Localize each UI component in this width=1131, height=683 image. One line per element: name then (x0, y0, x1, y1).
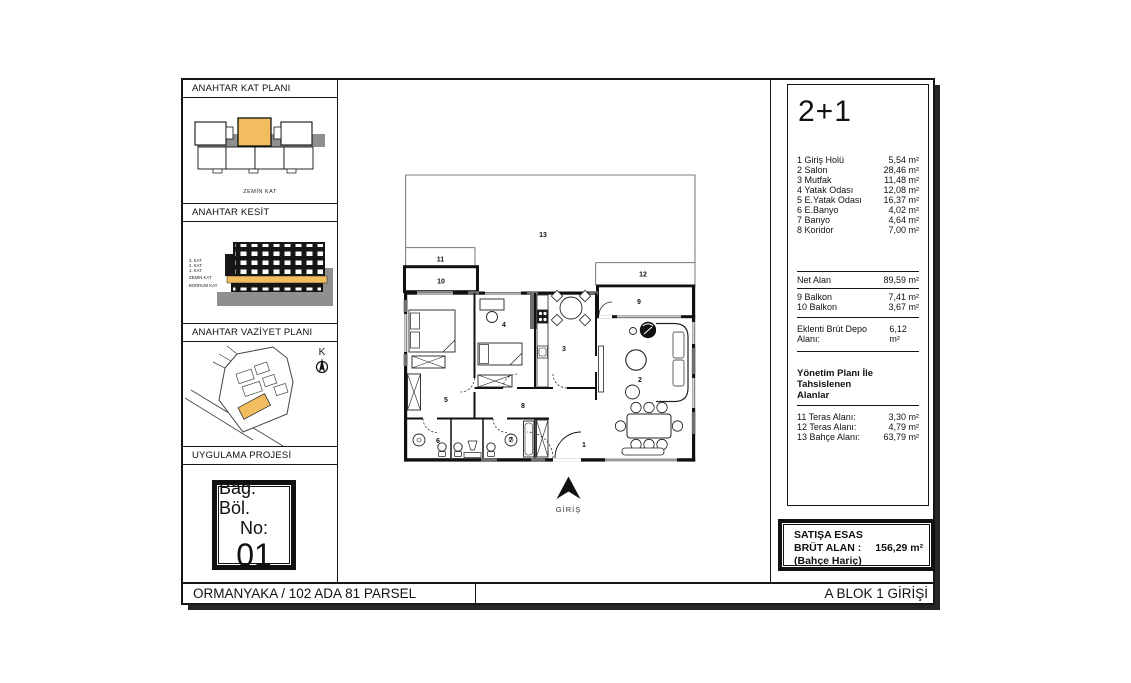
room-area: 11,48 m² (884, 175, 919, 185)
section-title-key-site-plan: ANAHTAR VAZİYET PLANI (183, 323, 337, 342)
room-name: 8 Koridor (797, 225, 834, 235)
key-section-thumbnail: 3. KAT 2. KAT 1. KAT ZEMİN KAT BODRUM KA… (183, 222, 337, 323)
sales-box-note: (Bahçe Hariç) (794, 555, 929, 568)
key-site-plan-thumbnail: K (183, 342, 337, 446)
sidebar: ANAHTAR KAT PLANI ZEMİN KAT ANAHTAR KESİ… (183, 80, 338, 582)
room-area: 7,00 m² (888, 225, 919, 235)
management-rows: 11 Teras Alanı:3,30 m² 12 Teras Alanı:4,… (797, 412, 919, 442)
net-area-value: 89,59 m² (883, 275, 919, 285)
key-floor-plan-thumbnail: ZEMİN KAT (183, 98, 337, 203)
floor-label: ZEMİN KAT (189, 275, 212, 280)
management-row: 13 Bahçe Alanı:63,79 m² (797, 432, 919, 442)
management-header-line1: Yönetim Planı İle Tahsislenen (797, 368, 919, 390)
gross-area-value: 156,29 m² (875, 542, 923, 555)
management-row: 12 Teras Alanı:4,79 m² (797, 422, 919, 432)
entrance-arrow-icon (557, 477, 581, 500)
room-area-row: 6 E.Banyo4,02 m² (797, 205, 919, 215)
section-title-key-section: ANAHTAR KESİT (183, 203, 337, 222)
key-site-plan-drawing: K (183, 342, 337, 446)
balcony-row: 10 Balkon3,67 m² (797, 302, 919, 312)
room-area-row: 8 Koridor7,00 m² (797, 225, 919, 235)
room-label-5: 5 (444, 397, 448, 404)
north-label: K (319, 347, 326, 358)
room-label-1: 1 (582, 442, 586, 449)
room-area: 4,64 m² (888, 215, 919, 225)
gross-area-label: BRÜT ALAN : (794, 542, 861, 555)
room-area-row: 2 Salon28,46 m² (797, 165, 919, 175)
management-label: 11 Teras Alanı: (797, 412, 856, 422)
room-label-7: 7 (509, 437, 513, 444)
right-column: 2+1 1 Giriş Holü5,54 m² 2 Salon28,46 m² … (770, 80, 933, 582)
room-area-row: 5 E.Yatak Odası16,37 m² (797, 195, 919, 205)
room-name: 2 Salon (797, 165, 828, 175)
key-floor-plan-drawing: ZEMİN KAT (183, 98, 337, 203)
storage-label: Eklenti Brüt Depo Alanı: (797, 324, 889, 344)
management-value: 4,79 m² (888, 422, 919, 432)
project-title: ORMANYAKA / 102 ADA 81 PARSEL (183, 584, 476, 603)
highlighted-unit (238, 118, 271, 146)
net-area-block: Net Alan89,59 m² (797, 271, 919, 289)
balcony-area: 3,67 m² (888, 302, 919, 312)
room-name: 4 Yatak Odası (797, 185, 853, 195)
room-area-row: 3 Mutfak11,48 m² (797, 175, 919, 185)
drawing-sheet: ANAHTAR KAT PLANI ZEMİN KAT ANAHTAR KESİ… (181, 78, 935, 605)
room-area: 28,46 m² (883, 165, 919, 175)
room-name: 5 E.Yatak Odası (797, 195, 862, 205)
sales-box-title: SATIŞA ESAS (794, 529, 929, 542)
room-label-12: 12 (639, 272, 647, 279)
room-name: 1 Giriş Holü (797, 155, 844, 165)
room-label-3: 3 (562, 346, 566, 353)
unit-number-box: Bağ. Böl. No: 01 (212, 480, 296, 570)
north-arrow-icon: K (317, 347, 328, 373)
room-name: 6 E.Banyo (797, 205, 839, 215)
room-area-list: 1 Giriş Holü5,54 m² 2 Salon28,46 m² 3 Mu… (797, 155, 919, 235)
room-area-row: 7 Banyo4,64 m² (797, 215, 919, 225)
unit-type: 2+1 (798, 95, 919, 129)
floor-plan: 13 11 10 12 9 4 3 2 5 8 6 7 1 GİRİŞ (385, 160, 715, 520)
management-header-line2: Alanlar (797, 390, 919, 401)
room-area: 12,08 m² (883, 185, 919, 195)
title-bar: ORMANYAKA / 102 ADA 81 PARSEL A BLOK 1 G… (183, 582, 933, 603)
management-label: 13 Bahçe Alanı: (797, 432, 860, 442)
key-section-drawing: 3. KAT 2. KAT 1. KAT ZEMİN KAT BODRUM KA… (183, 222, 337, 323)
balcony-row: 9 Balkon7,41 m² (797, 292, 919, 302)
room-name: 7 Banyo (797, 215, 830, 225)
floor-labels: 3. KAT 2. KAT 1. KAT ZEMİN KAT BODRUM KA… (189, 258, 218, 288)
management-value: 3,30 m² (888, 412, 919, 422)
section-title-key-floor-plan: ANAHTAR KAT PLANI (183, 80, 337, 98)
room-name: 3 Mutfak (797, 175, 832, 185)
room-area: 5,54 m² (888, 155, 919, 165)
unit-box-line1: Bağ. Böl. (219, 478, 289, 518)
unit-number-area: Bağ. Böl. No: 01 (183, 465, 337, 587)
balcony-name: 9 Balkon (797, 292, 832, 302)
section-title-application-project: UYGULAMA PROJESİ (183, 446, 337, 465)
management-plan-header: Yönetim Planı İle Tahsislenen Alanlar (797, 368, 919, 406)
management-value: 63,79 m² (883, 432, 919, 442)
room-label-8: 8 (521, 403, 525, 410)
net-area-label: Net Alan (797, 275, 831, 285)
room-area-row: 4 Yatak Odası12,08 m² (797, 185, 919, 195)
room-label-9: 9 (637, 299, 641, 306)
highlighted-floor (227, 276, 327, 283)
room-label-10: 10 (437, 279, 445, 286)
balcony-name: 10 Balkon (797, 302, 837, 312)
key-plan-caption: ZEMİN KAT (243, 188, 277, 195)
unit-box-line2: No: (240, 518, 268, 538)
entrance-label: GİRİŞ (556, 505, 581, 514)
room-area: 16,37 m² (883, 195, 919, 205)
area-table-panel: 2+1 1 Giriş Holü5,54 m² 2 Salon28,46 m² … (787, 84, 929, 506)
room-area: 4,02 m² (888, 205, 919, 215)
balcony-block: 9 Balkon7,41 m² 10 Balkon3,67 m² (797, 289, 919, 318)
storage-block: Eklenti Brüt Depo Alanı:6,12 m² (797, 318, 919, 352)
room-label-6: 6 (436, 438, 440, 445)
management-row: 11 Teras Alanı:3,30 m² (797, 412, 919, 422)
floor-label: BODRUM KAT (189, 283, 218, 288)
page: { "colors": { "highlight": "#F2BD5F", "w… (0, 0, 1131, 683)
gross-sales-area-box: SATIŞA ESAS BRÜT ALAN : 156,29 m² (Bahçe… (778, 519, 935, 571)
unit-box-number: 01 (236, 538, 272, 572)
room-label-11: 11 (437, 257, 445, 264)
storage-value: 6,12 m² (889, 324, 919, 344)
room-label-4: 4 (502, 322, 506, 329)
floor-label: 1. KAT (189, 268, 202, 273)
balcony-area: 7,41 m² (888, 292, 919, 302)
block-entrance-title: A BLOK 1 GİRİŞİ (824, 584, 928, 603)
room-area-row: 1 Giriş Holü5,54 m² (797, 155, 919, 165)
management-label: 12 Teras Alanı: (797, 422, 856, 432)
room-label-13: 13 (539, 232, 547, 239)
room-label-2: 2 (638, 377, 642, 384)
